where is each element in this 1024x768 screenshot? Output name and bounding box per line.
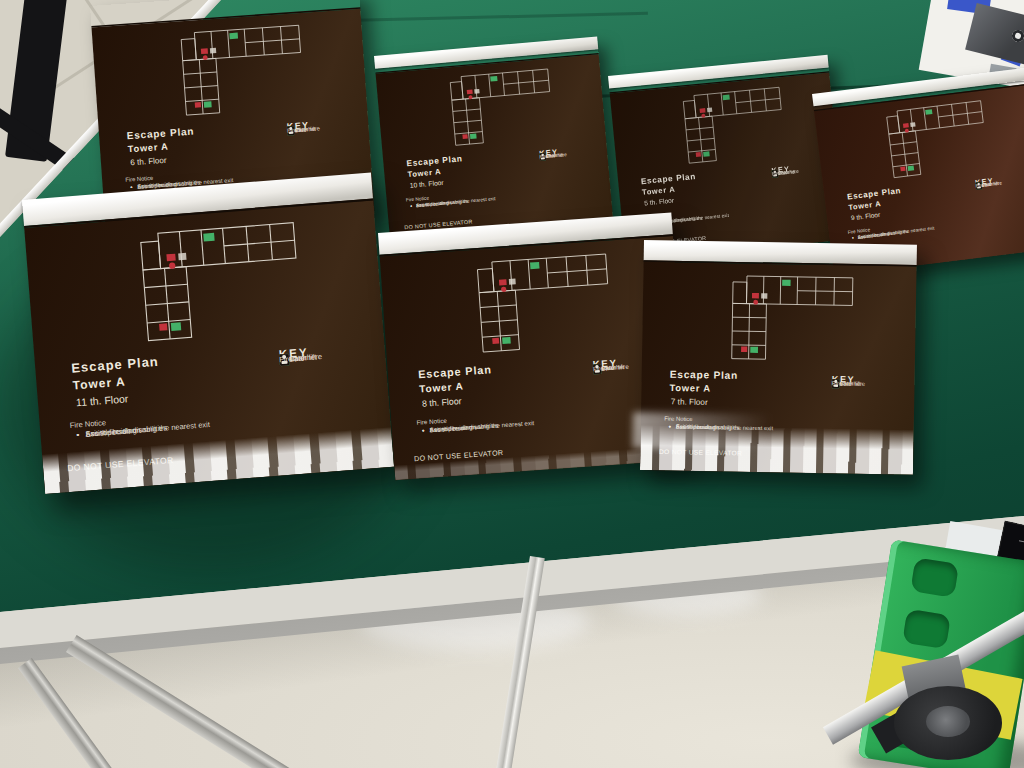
key-item-fireman-lift: Fireman lift [975, 181, 976, 190]
sign-tower-label: Tower A [72, 374, 126, 392]
plan-fhc-marker-top [499, 279, 507, 285]
sign-tower-label: Tower A [642, 185, 676, 197]
plan-fhc-marker-top [467, 89, 473, 94]
plan-exit-marker-top [723, 95, 730, 101]
key-item-fireman-lift: Fireman lift [593, 363, 594, 376]
plan-fhc-marker-top [166, 254, 175, 262]
key-item-fireman-lift: Fireman lift [287, 125, 288, 137]
plan-exit-marker-top [229, 33, 238, 40]
plan-fhc-marker-bottom [462, 134, 467, 139]
plan-exit-marker-bottom [908, 165, 915, 171]
sign-title: Escape Plan [71, 354, 160, 376]
plan-fhc-marker-bottom [696, 152, 701, 157]
sign-floor-label: 6 th. Floor [130, 155, 167, 167]
fire-notice-item: Sound fire alarm [669, 423, 719, 432]
sign-face: Escape Plan Tower A 10 th. Floor Fire No… [375, 53, 613, 244]
plan-fhc-marker-bottom [492, 338, 499, 344]
plan-fhc-marker-top [700, 108, 706, 113]
plan-elevator-marker [707, 107, 712, 112]
sign-tower-label: Tower A [419, 380, 464, 395]
sign-floor-label: 9 th. Floor [850, 211, 880, 222]
sign-title: Escape Plan [126, 125, 194, 141]
sign-tower-label: Tower A [127, 141, 168, 155]
workshop-photo: Escape Plan Tower A 6 th. Floor Fire Not… [0, 0, 1024, 768]
plan-exit-marker-top [490, 76, 497, 82]
plan-elevator-marker [910, 122, 915, 127]
floor-plan-map [158, 19, 310, 121]
floor-plan-map [709, 269, 859, 365]
key-item-fireman-lift: Fireman lift [771, 169, 772, 178]
plan-elevator-marker [509, 279, 516, 285]
sign-face: Escape Plan Tower A 7 th. Floor Fire Not… [640, 260, 917, 475]
plan-elevator-marker [178, 253, 186, 260]
key-item-fireman-lift: Fireman lift [279, 352, 280, 367]
floor-plan-map [431, 64, 559, 151]
fire-notice-item: Exit the buiding using the nearest exit [669, 423, 773, 433]
plan-exit-marker-bottom [171, 322, 181, 331]
plan-fhc-marker-bottom [195, 102, 201, 108]
plan-exit-marker-top [782, 280, 791, 286]
sign-key-legend: KEY You are here FHC Elevator Exit [975, 171, 1024, 179]
sign-title: Escape Plan [640, 171, 696, 186]
sign-title: Escape Plan [406, 154, 463, 168]
plan-exit-marker-bottom [502, 337, 511, 344]
floor-plan-map [111, 214, 310, 349]
sign-title: Escape Plan [670, 368, 739, 381]
plan-elevator-marker [210, 48, 216, 54]
key-item-fireman-lift: Fireman lift [539, 152, 540, 162]
sign-key-legend: KEY You are here FHC Elevator Exit [286, 117, 363, 122]
sign-tower-label: Tower A [669, 382, 711, 394]
plan-exit-marker-top [925, 109, 932, 115]
plan-fhc-marker-bottom [900, 166, 905, 171]
plan-fhc-marker-bottom [159, 323, 167, 330]
fire-notice-item: Assist person disabilities [669, 423, 740, 432]
caster-wheel-hub [926, 706, 970, 737]
fire-notice-label: Fire Notice [664, 415, 692, 423]
sign-tower-label: Tower A [407, 167, 442, 179]
escape-plan-sign-11f: Escape Plan Tower A 11 th. Floor Fire No… [22, 173, 394, 495]
plan-exit-marker-bottom [470, 133, 477, 139]
floor-plan-map [452, 247, 618, 359]
sign-key-legend: KEY You are here FHC Elevator Exit [539, 144, 603, 150]
plan-fhc-marker-top [903, 123, 909, 128]
sign-key-legend: KEY You are here FHC Elevator Exit [832, 374, 910, 375]
plan-fhc-marker-top [201, 48, 208, 54]
plan-exit-marker-bottom [750, 347, 758, 353]
floor-plan-map [868, 95, 994, 183]
sign-title: Escape Plan [418, 363, 492, 381]
crate-handle-slot [910, 557, 959, 597]
sign-floor-label: 11 th. Floor [76, 392, 129, 408]
sign-floor-label: 5 th. Floor [644, 196, 674, 206]
sign-floor-label: 8 th. Floor [422, 396, 462, 409]
crate-handle-slot [902, 609, 951, 649]
plan-exit-marker-bottom [204, 101, 212, 108]
plan-exit-marker-top [530, 262, 540, 269]
plan-exit-marker-top [203, 233, 214, 242]
sign-face: Escape Plan Tower A 11 th. Floor Fire No… [24, 198, 394, 494]
escape-plan-sign-7f: Escape Plan Tower A 7 th. Floor Fire Not… [640, 240, 917, 475]
plan-fhc-marker-bottom [741, 347, 747, 352]
sign-floor-label: 7 th. Floor [671, 396, 708, 406]
floor-plan-map [664, 82, 790, 169]
sign-floor-label: 10 th. Floor [409, 178, 444, 189]
reflection-glare [640, 425, 914, 475]
escape-plan-sign-10f: Escape Plan Tower A 10 th. Floor Fire No… [374, 36, 614, 244]
plan-elevator-marker [761, 293, 767, 298]
plan-exit-marker-bottom [703, 151, 710, 157]
plan-fhc-marker-top [752, 293, 759, 298]
plan-elevator-marker [474, 89, 479, 94]
sign-key-legend: KEY You are here FHC Elevator Exit [278, 340, 378, 348]
fire-notice-list: Sound fire alarm Assist person disabilit… [669, 423, 817, 426]
